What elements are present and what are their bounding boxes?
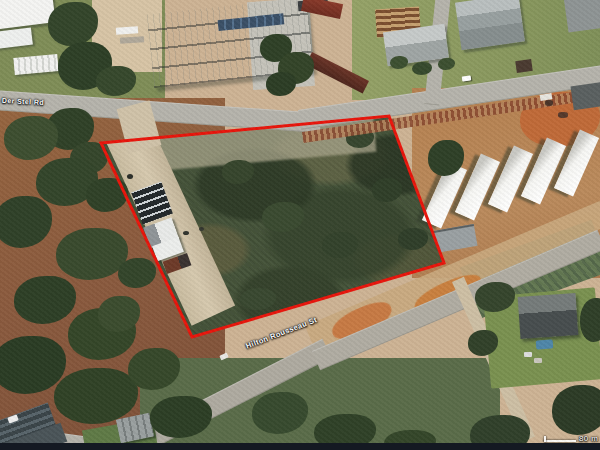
bottom-letterbox-bar	[0, 443, 600, 450]
scale-bar-label: 80 m	[579, 434, 598, 443]
scale-bar-line	[544, 440, 576, 442]
satellite-map: Van Der Stel Rd Hilton Rousseau St 80 m	[0, 0, 600, 450]
scale-bar-tick	[544, 436, 546, 442]
property-boundary	[101, 116, 444, 337]
property-boundary-overlay	[0, 0, 600, 450]
